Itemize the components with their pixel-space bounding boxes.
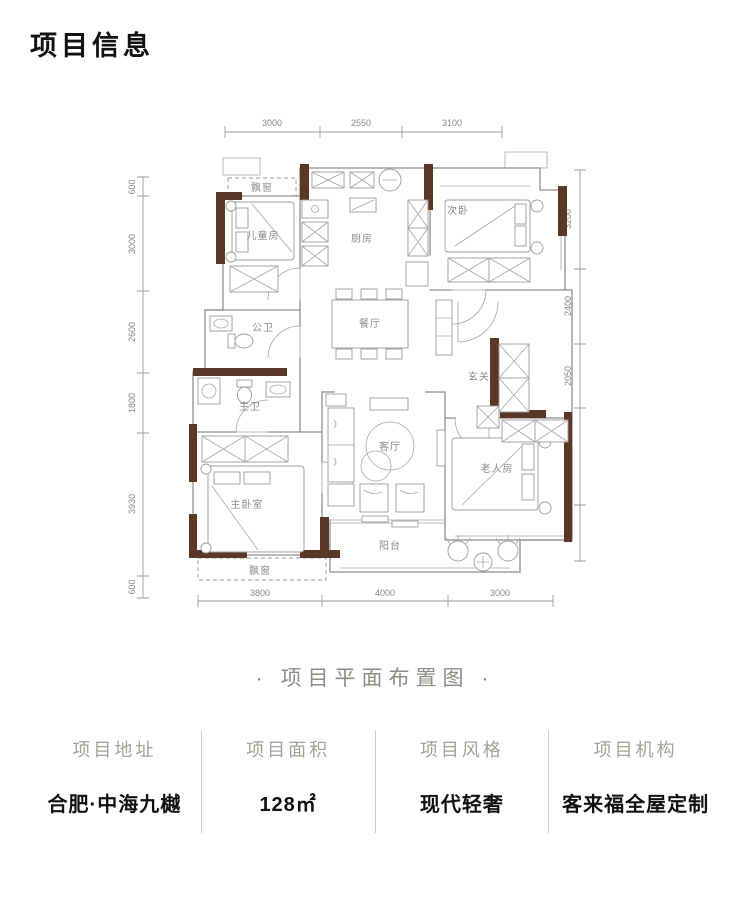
info-col-address: 项目地址 合肥·中海九樾 <box>28 730 201 833</box>
info-value-agency: 客来福全屋定制 <box>549 788 722 817</box>
room-label-living: 客厅 <box>379 440 401 453</box>
info-value-area: 128㎡ <box>202 788 375 817</box>
info-value-style: 现代轻奢 <box>376 788 549 817</box>
room-label-dining: 餐厅 <box>359 317 381 330</box>
info-label-address: 项目地址 <box>28 736 201 762</box>
project-info-page: { "page": { "title": "项目信息" }, "plan": {… <box>0 0 750 901</box>
floor-plan: 3000 2550 3100 3800 4000 3000 600 3000 2… <box>0 0 750 660</box>
room-label-kitchen: 厨房 <box>351 232 373 245</box>
dim-label-left-2: 2600 <box>127 322 137 342</box>
room-label-balcony: 阳台 <box>379 539 401 552</box>
project-info-row: 项目地址 合肥·中海九樾 项目面积 128㎡ 项目风格 现代轻奢 项目机构 客来… <box>28 730 722 833</box>
room-label-master-bedroom: 主卧室 <box>231 498 264 511</box>
plan-caption: · 项目平面布置图 · <box>0 662 750 692</box>
room-label-elder-room: 老人房 <box>481 462 514 475</box>
dim-label-bottom-2: 3000 <box>490 588 510 598</box>
info-label-area: 项目面积 <box>202 736 375 762</box>
room-label-public-bath: 公卫 <box>252 323 274 334</box>
dim-label-left-4: 3930 <box>127 494 137 514</box>
dim-label-bottom-1: 4000 <box>375 588 395 598</box>
dim-label-top-2: 3100 <box>442 118 462 128</box>
dim-label-left-1: 3000 <box>127 234 137 254</box>
room-label-children-room: 儿童房 <box>247 229 280 242</box>
room-label-bay-window-top: 飘窗 <box>251 181 273 194</box>
room-label-second-bedroom: 次卧 <box>447 204 469 217</box>
info-value-address: 合肥·中海九樾 <box>28 788 201 817</box>
info-col-agency: 项目机构 客来福全屋定制 <box>548 730 722 833</box>
room-label-bay-window-bottom: 飘窗 <box>249 564 271 577</box>
dim-label-top-1: 2550 <box>351 118 371 128</box>
room-label-master-bath: 主卫 <box>239 401 261 413</box>
info-col-style: 项目风格 现代轻奢 <box>375 730 549 833</box>
info-label-style: 项目风格 <box>376 736 549 762</box>
info-label-agency: 项目机构 <box>549 736 722 762</box>
dim-label-left-5: 600 <box>127 579 137 594</box>
dim-label-bottom-0: 3800 <box>250 588 270 598</box>
dim-label-left-0: 600 <box>127 179 137 194</box>
info-col-area: 项目面积 128㎡ <box>201 730 375 833</box>
dim-label-left-3: 1800 <box>127 393 137 413</box>
room-label-entry: 玄关 <box>468 370 490 383</box>
dim-label-top-0: 3000 <box>262 118 282 128</box>
